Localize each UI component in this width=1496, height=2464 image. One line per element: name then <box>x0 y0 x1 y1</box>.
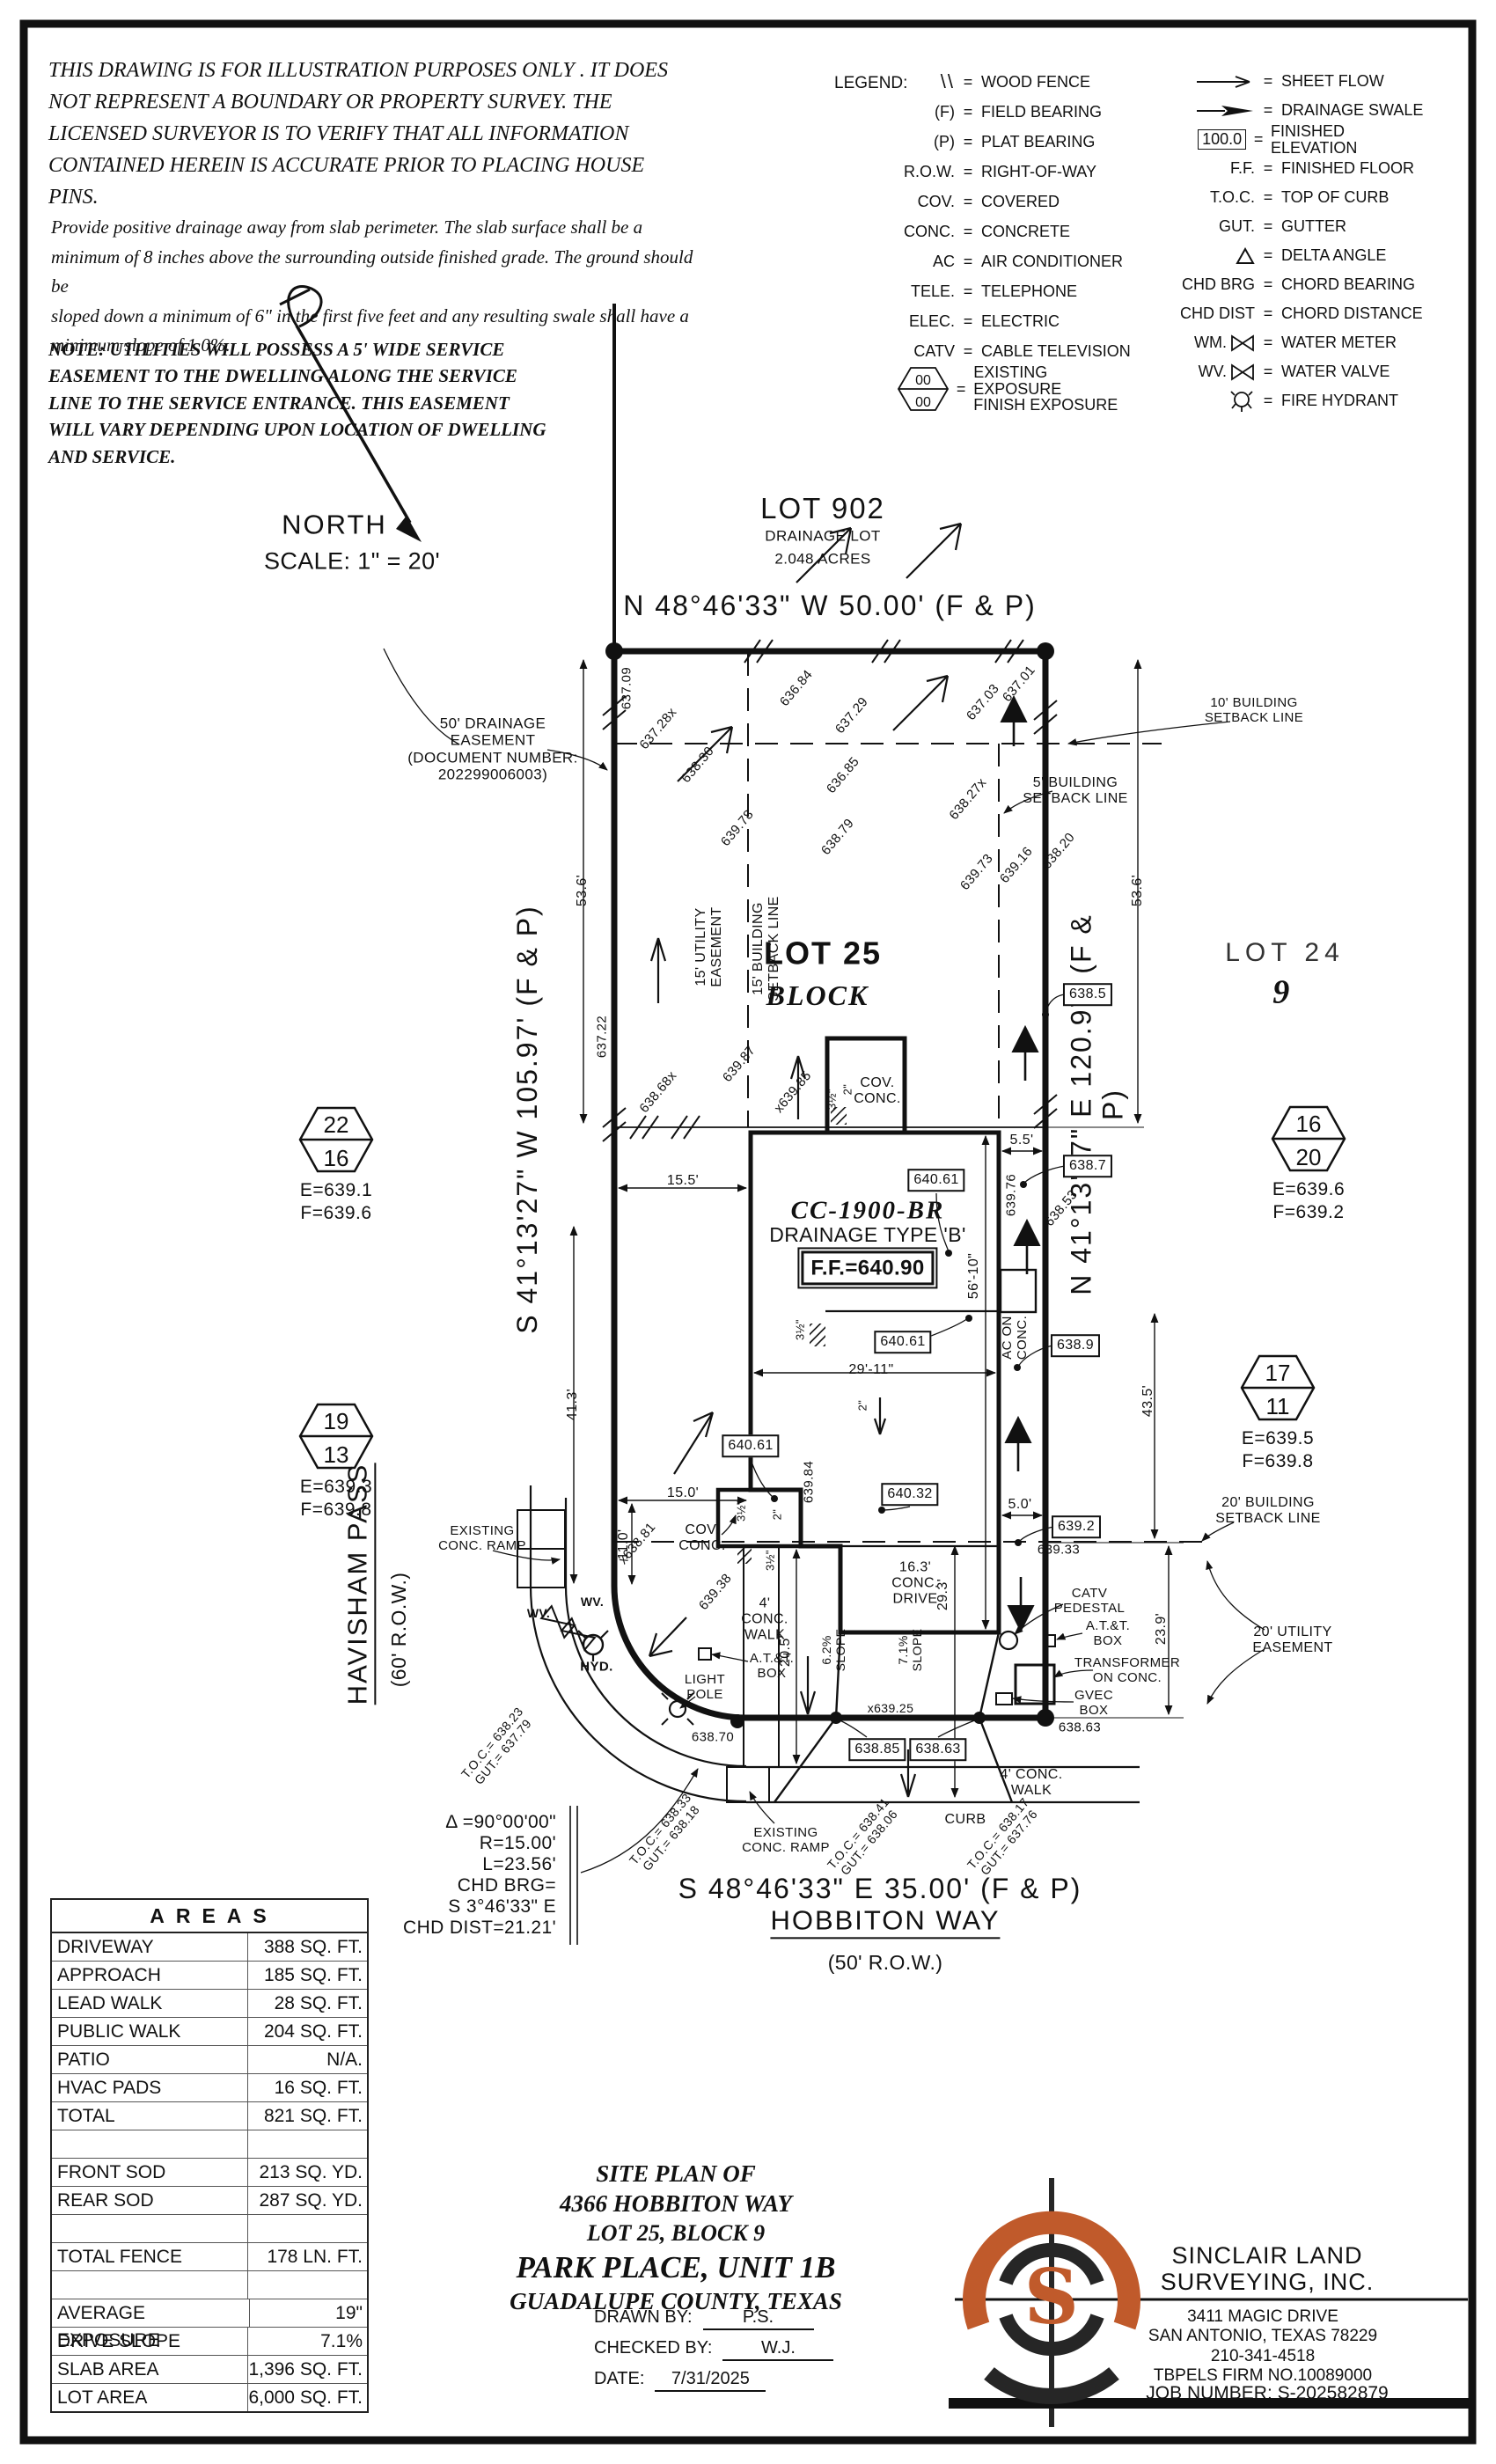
plan-label: 638.27x <box>946 775 989 823</box>
date-label: DATE: <box>594 2369 644 2389</box>
plan-label: 53.6' <box>575 875 590 906</box>
plan-label: AC ON CONC. <box>1000 1316 1030 1360</box>
exposure-values: E=639.3F=639.8 <box>298 1476 374 1522</box>
areas-row <box>52 2215 367 2243</box>
plan-label: 639.84 <box>801 1461 816 1503</box>
exposure-marker: 1913E=639.3F=639.8 <box>298 1403 374 1522</box>
plan-label: EXISTING CONC. RAMP <box>438 1523 526 1553</box>
plan-label: LOT 24 <box>1225 938 1345 968</box>
areas-row-label: LEAD WALK <box>52 1990 248 2017</box>
plan-label: WV. <box>527 1607 550 1621</box>
areas-row: TOTAL FENCE178 LN. FT. <box>52 2243 367 2271</box>
plan-label: 7.1% SLOPE <box>897 1629 925 1672</box>
areas-row: LEAD WALK28 SQ. FT. <box>52 1990 367 2018</box>
exposure-hexagon-icon: 1620 <box>1271 1105 1346 1172</box>
plan-label: 640.61 <box>907 1169 964 1192</box>
plan-label: 29.3' <box>935 1579 951 1610</box>
plan-label: GVEC BOX <box>1074 1688 1113 1718</box>
areas-row: PATION/A. <box>52 2046 367 2074</box>
svg-text:16: 16 <box>324 1145 349 1171</box>
plan-label: 638.70 <box>692 1729 734 1744</box>
plan-label: COV. CONC. <box>854 1075 901 1107</box>
plan-label: CURB <box>945 1812 986 1828</box>
plan-label: 637.03 <box>964 681 1002 723</box>
plan-label: HYD. <box>580 1659 612 1674</box>
firm-phone: 210-341-4518 <box>1131 2347 1395 2366</box>
areas-row-value: 388 SQ. FT. <box>248 1933 367 1961</box>
plan-label: (50' R.O.W.) <box>828 1951 943 1974</box>
plan-label: TRANSFORMER ON CONC. <box>1074 1655 1180 1685</box>
areas-row-value: 185 SQ. FT. <box>248 1962 367 1989</box>
areas-row-value: 287 SQ. YD. <box>248 2187 367 2214</box>
areas-row-label: AVERAGE EXPOSURE <box>52 2299 250 2327</box>
plan-label: HOBBITON WAY <box>770 1904 1000 1939</box>
plan-label: 637.01 <box>1000 663 1038 705</box>
plan-label: T.O.C.= 638.17 GUT.= 637.76 <box>965 1795 1044 1881</box>
plan-label: 3½" <box>736 1500 749 1522</box>
title-line-1: SITE PLAN OF <box>429 2160 922 2188</box>
plan-label: 638.63 <box>1059 1720 1101 1734</box>
areas-row: DRIVE SLOPE7.1% <box>52 2328 367 2356</box>
signoff-block: DRAWN BY:P.S. CHECKED BY:W.J. DATE:7/31/… <box>594 2307 833 2400</box>
date-value: 7/31/2025 <box>655 2369 766 2392</box>
plan-label: T.O.C.= 638.23 GUT.= 637.79 <box>459 1705 538 1790</box>
drawn-by-value: P.S. <box>703 2307 814 2330</box>
plan-label: 2" <box>842 1084 855 1096</box>
plan-label: x639.25 <box>868 1702 914 1716</box>
areas-row-value: 178 LN. FT. <box>248 2243 367 2270</box>
plan-label: 637.22 <box>594 1016 609 1058</box>
areas-row: APPROACH185 SQ. FT. <box>52 1962 367 1990</box>
plan-label: 9 <box>1272 973 1289 1011</box>
plan-label: 639.2 <box>1052 1515 1101 1538</box>
plan-label: 5.5' <box>1010 1133 1034 1148</box>
areas-row-label: PATIO <box>52 2046 248 2073</box>
areas-row-label: TOTAL <box>52 2102 248 2130</box>
areas-row-label: HVAC PADS <box>52 2074 248 2101</box>
plan-label: S 41°13'27" W 105.97' (F & P) <box>511 905 543 1333</box>
exposure-hexagon-icon: 1913 <box>298 1403 374 1470</box>
svg-text:19: 19 <box>324 1408 349 1434</box>
plan-label: 636.85 <box>824 754 862 796</box>
plan-label: 639.78 <box>718 807 757 849</box>
areas-row-value: 16 SQ. FT. <box>248 2074 367 2101</box>
areas-row: DRIVEWAY388 SQ. FT. <box>52 1933 367 1962</box>
checked-by-value: W.J. <box>722 2338 833 2361</box>
title-lot-block: LOT 25, BLOCK 9 <box>429 2220 922 2247</box>
drawn-by-label: DRAWN BY: <box>594 2307 693 2328</box>
plan-label: 29'-11" <box>848 1362 893 1378</box>
plan-label: N 48°46'33" W 50.00' (F & P) <box>623 590 1036 621</box>
plan-label: x639.85 <box>771 1068 814 1116</box>
areas-row <box>52 2271 367 2299</box>
areas-row: LOT AREA6,000 SQ. FT. <box>52 2384 367 2411</box>
plan-label: 5' BUILDING SETBACK LINE <box>1023 775 1128 807</box>
plan-label: CATV PEDESTAL <box>1054 1586 1125 1616</box>
plan-label: 638.7 <box>1063 1155 1112 1177</box>
plan-label: 3½" <box>826 1089 840 1110</box>
areas-row-value: 1,396 SQ. FT. <box>248 2356 367 2383</box>
plan-label: 640.61 <box>874 1331 931 1353</box>
plan-label: 20' BUILDING SETBACK LINE <box>1215 1495 1321 1527</box>
areas-row-value: 28 SQ. FT. <box>248 1990 367 2017</box>
plan-label: F.F.=640.90 <box>801 1250 934 1285</box>
plan-label: SCALE: 1" = 20' <box>264 548 440 576</box>
areas-row-label: SLAB AREA <box>52 2356 248 2383</box>
svg-text:11: 11 <box>1266 1393 1290 1419</box>
plan-label: 53.6' <box>1130 875 1146 906</box>
plan-label: 10' BUILDING SETBACK LINE <box>1205 695 1303 725</box>
plan-label: 20' UTILITY EASEMENT <box>1252 1624 1332 1656</box>
areas-row: FRONT SOD213 SQ. YD. <box>52 2159 367 2187</box>
areas-row-label: PUBLIC WALK <box>52 2018 248 2045</box>
plan-label: Δ =90°00'00" R=15.00' L=23.56' CHD BRG= … <box>403 1812 556 1939</box>
plan-label: NORTH <box>282 509 387 539</box>
plan-label: 5.0' <box>1008 1497 1032 1513</box>
plan-label: 50' DRAINAGE EASEMENT (DOCUMENT NUMBER: … <box>407 715 578 783</box>
plan-label: BLOCK <box>766 979 869 1011</box>
areas-row-label <box>52 2130 248 2158</box>
plan-label: 2.048 ACRES <box>774 550 870 567</box>
areas-row-value: 204 SQ. FT. <box>248 2018 367 2045</box>
title-block: SITE PLAN OF 4366 HOBBITON WAY LOT 25, B… <box>429 2160 922 2315</box>
plan-label: WV. <box>581 1595 604 1610</box>
exposure-values: E=639.6F=639.2 <box>1271 1178 1346 1225</box>
plan-label: 43.5' <box>1140 1385 1156 1417</box>
plan-label: CC-1900-BR <box>791 1196 945 1225</box>
areas-row-value: 7.1% <box>248 2328 367 2355</box>
areas-row-value: 6,000 SQ. FT. <box>248 2384 367 2411</box>
areas-row-label: DRIVE SLOPE <box>52 2328 248 2355</box>
plan-label: 638.85 <box>848 1738 906 1761</box>
plan-label: 20.5' <box>778 1635 794 1667</box>
areas-row-value <box>248 2130 367 2158</box>
plan-label: N 41°13'27" E 120.97' (F & P) <box>1066 906 1130 1304</box>
areas-row: REAR SOD287 SQ. YD. <box>52 2187 367 2215</box>
plan-label: 638.68x <box>636 1068 679 1116</box>
plan-label: DRAINAGE TYPE 'B' <box>769 1223 966 1246</box>
firm-street: 3411 MAGIC DRIVE <box>1131 2307 1395 2327</box>
firm-name: SINCLAIR LAND SURVEYING, INC. <box>1144 2242 1390 2295</box>
plan-label: COV. CONC. <box>678 1522 726 1554</box>
plan-label: EXISTING CONC. RAMP <box>742 1825 830 1855</box>
plan-label: 41.3' <box>565 1389 581 1420</box>
title-subdivision: PARK PLACE, UNIT 1B <box>429 2250 922 2285</box>
plan-label: 639.73 <box>957 851 996 893</box>
exposure-hexagon-icon: 1711 <box>1240 1354 1316 1421</box>
plan-label: 56'-10" <box>966 1253 982 1299</box>
checked-by-label: CHECKED BY: <box>594 2338 712 2358</box>
areas-table: AREAS DRIVEWAY388 SQ. FT.APPROACH185 SQ.… <box>50 1898 369 2413</box>
plan-label: 3½" <box>795 1319 808 1340</box>
areas-table-title: AREAS <box>52 1900 367 1933</box>
areas-row-label <box>52 2271 248 2299</box>
plan-label: S <box>1024 2255 1080 2341</box>
plan-label: 638.20 <box>1039 830 1078 872</box>
exposure-values: E=639.1F=639.6 <box>298 1179 374 1226</box>
svg-text:22: 22 <box>324 1111 349 1138</box>
plan-label: 638.79 <box>818 816 857 858</box>
areas-row-label: TOTAL FENCE <box>52 2243 248 2270</box>
plan-label: LIGHT POLE <box>685 1672 725 1702</box>
site-plan-sheet: THIS DRAWING IS FOR ILLUSTRATION PURPOSE… <box>0 0 1496 2464</box>
exposure-marker: 1711E=639.5F=639.8 <box>1240 1354 1316 1474</box>
areas-row-value <box>248 2215 367 2242</box>
plan-label: 637.28x <box>636 705 679 752</box>
plan-label: 639.33 <box>1038 1542 1080 1557</box>
areas-row-label <box>52 2215 248 2242</box>
job-number: JOB NUMBER: S-202582879 <box>1131 2383 1404 2404</box>
areas-row-value <box>248 2271 367 2299</box>
areas-row-label: DRIVEWAY <box>52 1933 248 1961</box>
exposure-values: E=639.5F=639.8 <box>1240 1427 1316 1474</box>
areas-row-value: 19" <box>250 2299 367 2327</box>
exposure-hexagon-icon: 2216 <box>298 1106 374 1173</box>
plan-label: 639.16 <box>997 844 1036 886</box>
plan-label: 3½" <box>765 1550 778 1571</box>
areas-row: AVERAGE EXPOSURE19" <box>52 2299 367 2328</box>
svg-text:13: 13 <box>324 1441 349 1468</box>
areas-row-label: LOT AREA <box>52 2384 248 2411</box>
plan-label: 2" <box>857 1400 870 1412</box>
areas-row-label: FRONT SOD <box>52 2159 248 2186</box>
areas-row: HVAC PADS16 SQ. FT. <box>52 2074 367 2102</box>
plan-label: T.O.C.= 638.33 GUT.= 638.18 <box>627 1791 706 1876</box>
title-address: 4366 HOBBITON WAY <box>429 2190 922 2218</box>
plan-label: (60' R.O.W.) <box>387 1573 410 1688</box>
plan-label: A.T.&T. BOX <box>1086 1618 1130 1648</box>
plan-label: 640.61 <box>722 1434 779 1457</box>
plan-label: 639.76 <box>1003 1174 1018 1216</box>
areas-row-value: N/A. <box>248 2046 367 2073</box>
plan-label: 637.29 <box>832 694 871 737</box>
plan-label: 639.87 <box>720 1043 759 1085</box>
plan-label: 638.9 <box>1051 1334 1100 1357</box>
svg-text:17: 17 <box>1265 1360 1291 1386</box>
plan-label: 23.9' <box>1154 1613 1170 1645</box>
areas-row-label: REAR SOD <box>52 2187 248 2214</box>
areas-row-value: 821 SQ. FT. <box>248 2102 367 2130</box>
plan-label: 4' CONC. WALK <box>1000 1767 1062 1799</box>
plan-label: 6.2% SLOPE <box>820 1629 848 1672</box>
firm-city: SAN ANTONIO, TEXAS 78229 <box>1131 2327 1395 2346</box>
svg-text:16: 16 <box>1296 1111 1322 1137</box>
areas-row-label: APPROACH <box>52 1962 248 1989</box>
plan-label: 637.09 <box>619 667 634 709</box>
plan-label: 638.30 <box>678 744 717 786</box>
areas-row: SLAB AREA1,396 SQ. FT. <box>52 2356 367 2384</box>
firm-address: 3411 MAGIC DRIVE SAN ANTONIO, TEXAS 7822… <box>1131 2307 1395 2387</box>
plan-label: 16.3' CONC. DRIVE <box>891 1560 939 1609</box>
plan-label: 638.5 <box>1063 983 1112 1006</box>
plan-label: T.O.C.= 638.41 GUT.= 638.06 <box>825 1795 904 1881</box>
plan-label: 638.63 <box>909 1738 966 1761</box>
plan-label: 639.38 <box>696 1571 735 1613</box>
plan-label: LOT 25 <box>764 935 882 971</box>
svg-text:20: 20 <box>1296 1144 1322 1170</box>
plan-label: 15' UTILITY EASEMENT <box>693 906 725 986</box>
plan-label: LOT 902 <box>760 492 885 525</box>
areas-table-body: DRIVEWAY388 SQ. FT.APPROACH185 SQ. FT.LE… <box>52 1933 367 2411</box>
areas-row <box>52 2130 367 2159</box>
exposure-marker: 2216E=639.1F=639.6 <box>298 1106 374 1226</box>
plan-label: 636.84 <box>777 667 816 709</box>
areas-row: TOTAL821 SQ. FT. <box>52 2102 367 2130</box>
plan-label: 2" <box>772 1509 785 1521</box>
areas-row: PUBLIC WALK204 SQ. FT. <box>52 2018 367 2046</box>
areas-row-value: 213 SQ. YD. <box>248 2159 367 2186</box>
plan-label: 640.32 <box>881 1483 938 1506</box>
plan-label: 15.5' <box>667 1173 699 1189</box>
plan-label: S 48°46'33" E 35.00' (F & P) <box>678 1873 1082 1904</box>
exposure-marker: 1620E=639.6F=639.2 <box>1271 1105 1346 1225</box>
plan-label: DRAINAGE LOT <box>765 527 880 544</box>
plan-label: 15.0' <box>667 1485 699 1501</box>
